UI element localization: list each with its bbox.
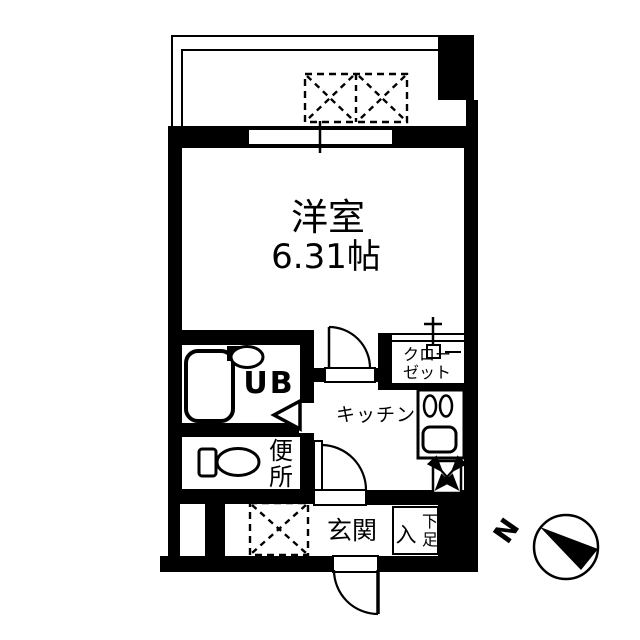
shoe-cabinet-char-top: 下 bbox=[422, 512, 438, 531]
unit-bath-label: UB bbox=[243, 366, 294, 401]
pipe-space-box bbox=[433, 461, 461, 493]
stove-burner-left bbox=[424, 396, 436, 417]
hall-door-arc bbox=[322, 445, 366, 490]
closet-label-line1: クロー bbox=[403, 345, 451, 364]
wall-ub-wc-divider bbox=[182, 423, 300, 437]
balcony-equipment-box bbox=[305, 74, 407, 122]
compass: N bbox=[488, 513, 598, 579]
toilet-label-char1: 便 bbox=[269, 437, 293, 465]
balcony bbox=[172, 36, 478, 128]
toilet-tank bbox=[199, 449, 216, 476]
kitchen-label: キッチン bbox=[336, 404, 416, 426]
wall-room-door-left bbox=[300, 368, 325, 382]
stove-burner-right bbox=[440, 396, 452, 417]
balcony-pillar-foot bbox=[466, 100, 478, 128]
shoe-cabinet-char-in: 入 bbox=[396, 523, 417, 547]
closet-label-line2: ゼット bbox=[403, 363, 451, 382]
washer-space-box bbox=[250, 503, 308, 555]
entrance-label: 玄関 bbox=[327, 516, 377, 545]
room-door-sill bbox=[325, 368, 375, 382]
toilet-label-char2: 所 bbox=[269, 463, 293, 491]
bath-sink bbox=[231, 347, 263, 368]
bathtub bbox=[186, 351, 233, 421]
wall-ub-kitchen-upper bbox=[300, 330, 314, 403]
window bbox=[248, 121, 393, 153]
shoe-cabinet-char-bottom: 足 bbox=[422, 530, 438, 549]
floor-plan: N 洋室 6.31帖 UB 便 所 キッチン クロー ゼット 玄関 入 下 足 bbox=[0, 0, 640, 640]
room-door-arc bbox=[329, 327, 370, 368]
wall-bottom-left bbox=[160, 556, 333, 572]
wall-bottom-right bbox=[378, 556, 478, 572]
entry-door-arc bbox=[334, 570, 378, 614]
main-room-label: 洋室 bbox=[291, 196, 365, 239]
wall-left bbox=[168, 126, 182, 504]
main-room-size: 6.31帖 bbox=[271, 237, 381, 277]
toilet-bowl bbox=[217, 449, 259, 476]
floor-plan-drawing: N 洋室 6.31帖 UB 便 所 キッチン クロー ゼット 玄関 入 下 足 bbox=[0, 0, 640, 640]
wall-ub-top bbox=[168, 330, 314, 345]
wall-closet-left bbox=[378, 333, 392, 390]
compass-north-label: N bbox=[488, 513, 526, 549]
wall-wc-kitchen-lower bbox=[300, 433, 314, 490]
hall-door-leaf bbox=[314, 441, 322, 490]
entry-door-sill bbox=[333, 556, 378, 572]
kitchen-sink bbox=[423, 427, 456, 452]
hall-door-sill bbox=[314, 490, 366, 505]
wall-wc-bottom bbox=[168, 489, 314, 504]
balcony-pillar bbox=[438, 36, 473, 100]
